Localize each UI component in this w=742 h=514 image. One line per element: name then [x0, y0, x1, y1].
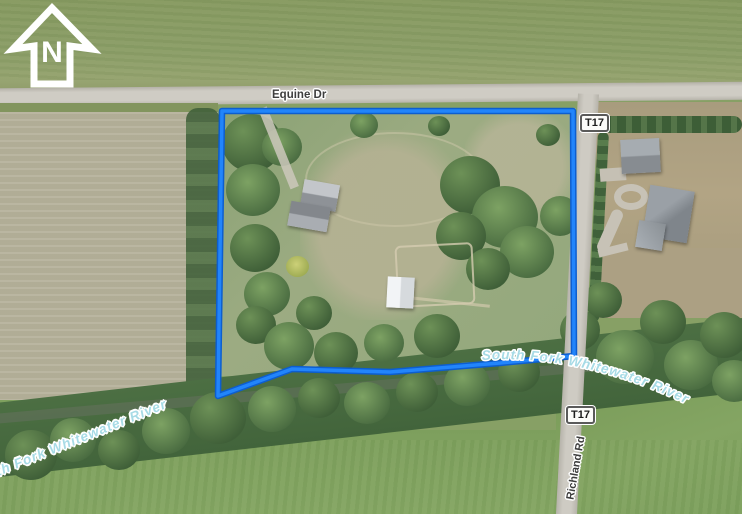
river-label-right-layer: South Fork Whitewater River	[0, 0, 742, 514]
north-arrow: N	[4, 2, 100, 106]
svg-text:South Fork Whitewater River: South Fork Whitewater River	[481, 347, 691, 406]
north-arrow-letter: N	[41, 36, 63, 69]
aerial-map-canvas[interactable]: Equine Dr T17 T17 Richland Rd South Fork…	[0, 0, 742, 514]
river-label-right: South Fork Whitewater River	[481, 347, 691, 406]
